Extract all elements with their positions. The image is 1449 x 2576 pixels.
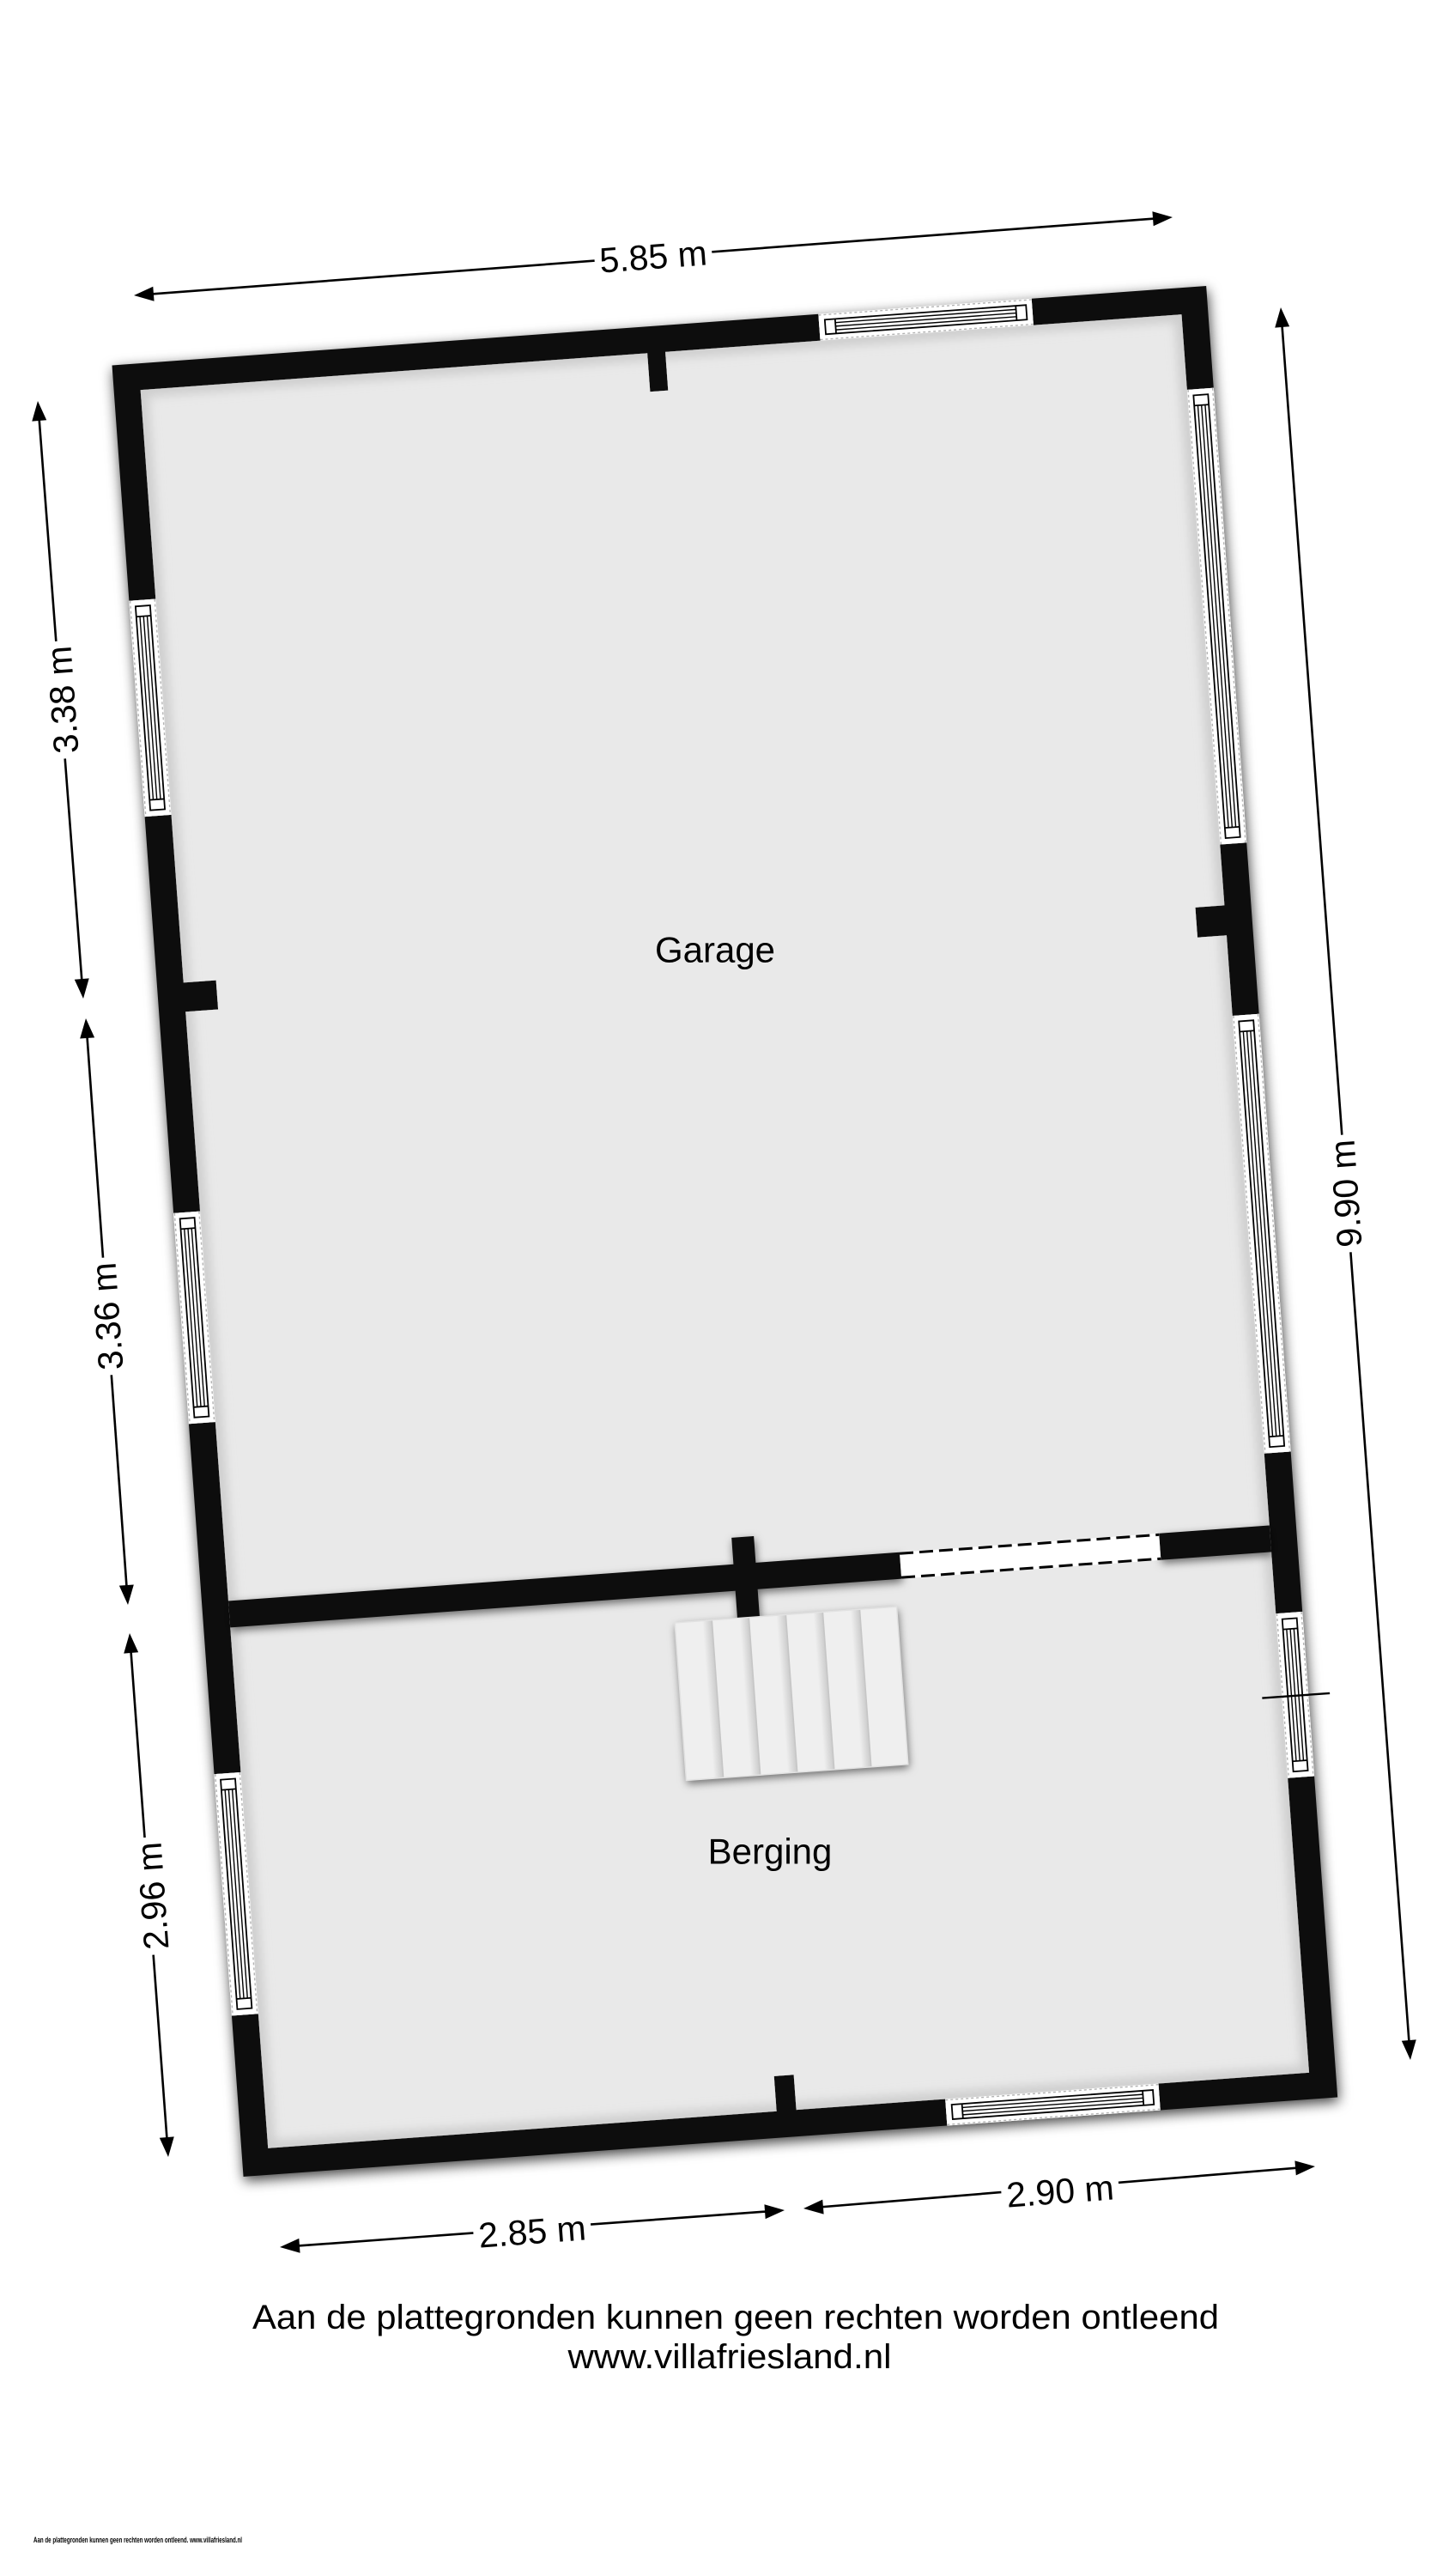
svg-text:3.38 m: 3.38 m [39,645,87,755]
svg-text:2.85 m: 2.85 m [477,2208,587,2255]
svg-text:3.36 m: 3.36 m [84,1261,131,1371]
svg-text:Garage: Garage [655,930,775,970]
svg-text:2.96 m: 2.96 m [130,1841,177,1951]
svg-text:Berging: Berging [708,1832,833,1872]
svg-text:2.90 m: 2.90 m [1005,2167,1115,2215]
svg-text:www.villafriesland.nl: www.villafriesland.nl [567,2338,891,2376]
svg-text:Aan de plattegronden kunnen ge: Aan de plattegronden kunnen geen rechten… [33,2536,242,2545]
svg-text:Aan de plattegronden kunnen ge: Aan de plattegronden kunnen geen rechten… [252,2299,1219,2336]
svg-text:5.85 m: 5.85 m [598,233,708,280]
svg-text:9.90 m: 9.90 m [1323,1139,1370,1249]
